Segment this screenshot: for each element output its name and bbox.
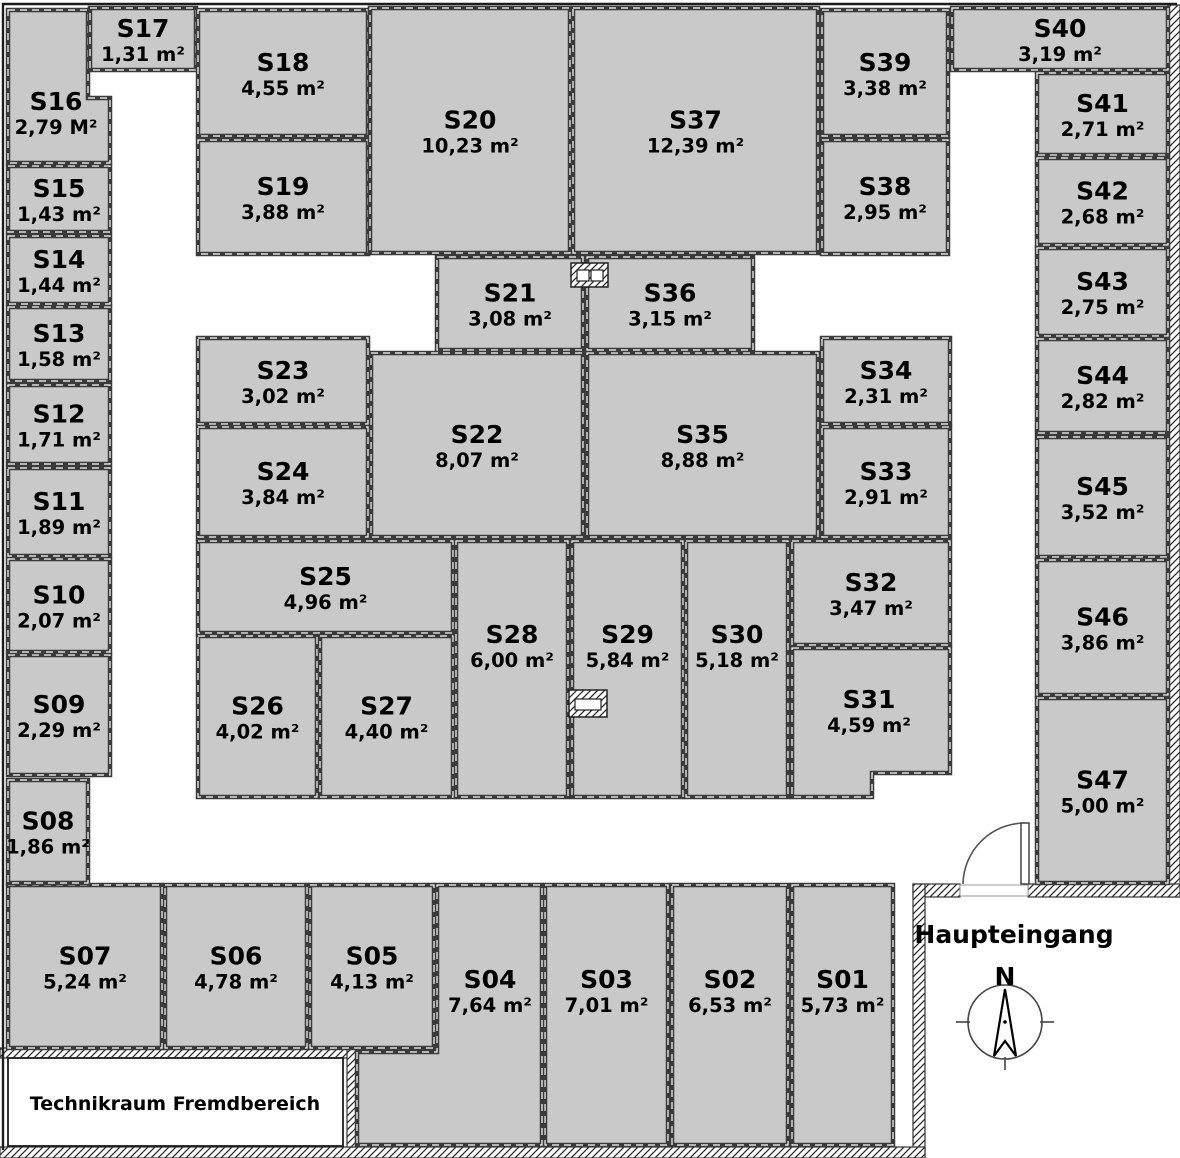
room-S20-area: 10,23 m² bbox=[421, 135, 518, 158]
room-S45: S453,52 m² bbox=[1037, 437, 1168, 557]
room-S05: S054,13 m² bbox=[310, 885, 434, 1048]
room-S30: S305,18 m² bbox=[686, 541, 788, 797]
room-S04-name: S04 bbox=[464, 965, 517, 994]
room-S06-area: 4,78 m² bbox=[194, 971, 278, 994]
room-S33-area: 2,91 m² bbox=[844, 486, 928, 509]
room-S32-area: 3,47 m² bbox=[829, 597, 913, 620]
room-S23: S233,02 m² bbox=[198, 338, 368, 424]
room-S43-name: S43 bbox=[1076, 267, 1129, 296]
room-S10-name: S10 bbox=[33, 581, 86, 610]
technikraum-label: Technikraum Fremdbereich bbox=[30, 1093, 320, 1115]
room-S12: S121,71 m² bbox=[8, 385, 110, 464]
room-S19-name: S19 bbox=[257, 172, 310, 201]
room-S35-name: S35 bbox=[676, 420, 729, 449]
room-S27-area: 4,40 m² bbox=[345, 721, 429, 744]
room-S25: S254,96 m² bbox=[198, 541, 453, 633]
room-S34: S342,31 m² bbox=[822, 338, 950, 424]
room-S39-name: S39 bbox=[859, 48, 912, 77]
room-S35-area: 8,88 m² bbox=[661, 449, 745, 472]
room-S32-name: S32 bbox=[845, 568, 898, 597]
room-S41-name: S41 bbox=[1076, 89, 1129, 118]
room-S28-area: 6,00 m² bbox=[470, 649, 554, 672]
room-S12-name: S12 bbox=[33, 400, 86, 429]
room-S31: S314,59 m² bbox=[792, 648, 950, 797]
room-S42-name: S42 bbox=[1076, 177, 1129, 206]
room-S11-name: S11 bbox=[33, 487, 86, 516]
room-S25-name: S25 bbox=[299, 562, 352, 591]
room-S09: S092,29 m² bbox=[8, 655, 110, 775]
room-S05-area: 4,13 m² bbox=[330, 971, 414, 994]
room-S28: S286,00 m² bbox=[456, 541, 568, 797]
room-S05-name: S05 bbox=[346, 942, 399, 971]
room-S38-name: S38 bbox=[859, 172, 912, 201]
room-S14: S141,44 m² bbox=[8, 236, 110, 304]
door-opening bbox=[960, 885, 1028, 896]
room-S41-area: 2,71 m² bbox=[1061, 118, 1145, 141]
room-S08-name: S08 bbox=[22, 807, 75, 836]
room-S44-name: S44 bbox=[1076, 361, 1129, 390]
room-S26: S264,02 m² bbox=[198, 636, 317, 797]
room-S45-name: S45 bbox=[1076, 472, 1129, 501]
room-S34-name: S34 bbox=[860, 356, 913, 385]
entrance-top-wall-right-segment bbox=[1028, 884, 1180, 897]
room-S18-area: 4,55 m² bbox=[241, 77, 325, 100]
room-S11-area: 1,89 m² bbox=[17, 516, 101, 539]
room-S40-name: S40 bbox=[1034, 14, 1087, 43]
room-S45-area: 3,52 m² bbox=[1061, 501, 1145, 524]
room-S15: S151,43 m² bbox=[8, 166, 110, 232]
room-S30-area: 5,18 m² bbox=[695, 649, 779, 672]
room-S23-area: 3,02 m² bbox=[241, 385, 325, 408]
room-S44-area: 2,82 m² bbox=[1061, 390, 1145, 413]
room-S33-name: S33 bbox=[860, 457, 913, 486]
room-S11: S111,89 m² bbox=[8, 468, 110, 556]
room-S41: S412,71 m² bbox=[1037, 73, 1168, 155]
room-S37-name: S37 bbox=[669, 106, 722, 135]
room-S38-area: 2,95 m² bbox=[843, 201, 927, 224]
compass-north-label: N bbox=[995, 962, 1016, 991]
room-S22-area: 8,07 m² bbox=[435, 449, 519, 472]
room-S02: S026,53 m² bbox=[672, 885, 788, 1145]
door-leaf bbox=[1021, 823, 1029, 884]
room-S37: S3712,39 m² bbox=[573, 8, 818, 253]
room-S15-name: S15 bbox=[33, 174, 86, 203]
room-S26-area: 4,02 m² bbox=[216, 721, 300, 744]
room-S04-area: 7,64 m² bbox=[448, 994, 532, 1017]
room-S08-area: 1,86 m² bbox=[6, 836, 90, 859]
room-S18: S184,55 m² bbox=[198, 10, 368, 136]
room-S21-area: 3,08 m² bbox=[468, 308, 552, 331]
room-S08: S081,86 m² bbox=[6, 780, 90, 883]
room-S03-name: S03 bbox=[580, 965, 633, 994]
room-S16-area: 2,79 M² bbox=[15, 116, 98, 139]
room-S28-name: S28 bbox=[486, 620, 539, 649]
room-S13: S131,58 m² bbox=[8, 307, 110, 381]
door-swing-arc bbox=[963, 823, 1025, 884]
room-S03-area: 7,01 m² bbox=[565, 994, 649, 1017]
room-S07-area: 5,24 m² bbox=[43, 971, 127, 994]
room-S17-name: S17 bbox=[117, 14, 170, 43]
room-S27-name: S27 bbox=[360, 692, 413, 721]
room-S31-name: S31 bbox=[843, 685, 896, 714]
room-S13-area: 1,58 m² bbox=[17, 348, 101, 371]
room-S22-name: S22 bbox=[451, 420, 504, 449]
room-S14-area: 1,44 m² bbox=[17, 274, 101, 297]
room-S15-area: 1,43 m² bbox=[17, 203, 101, 226]
room-S09-name: S09 bbox=[33, 690, 86, 719]
room-S13-name: S13 bbox=[33, 319, 86, 348]
main-entrance-label: Haupteingang bbox=[914, 920, 1113, 949]
room-S40-area: 3,19 m² bbox=[1018, 43, 1102, 66]
room-S46: S463,86 m² bbox=[1037, 560, 1168, 695]
room-S36-area: 3,15 m² bbox=[628, 308, 712, 331]
room-S33: S332,91 m² bbox=[822, 427, 950, 537]
compass: N bbox=[956, 962, 1054, 1070]
room-S17-area: 1,31 m² bbox=[101, 43, 185, 66]
room-S42: S422,68 m² bbox=[1037, 158, 1168, 245]
compass-center-dot bbox=[1003, 1020, 1007, 1024]
room-S30-name: S30 bbox=[711, 620, 764, 649]
room-S40: S403,19 m² bbox=[952, 8, 1168, 70]
room-S01-name: S01 bbox=[816, 965, 869, 994]
room-S36: S363,15 m² bbox=[587, 257, 753, 350]
room-S46-name: S46 bbox=[1076, 603, 1129, 632]
room-S37-area: 12,39 m² bbox=[647, 135, 744, 158]
room-S07-name: S07 bbox=[59, 942, 112, 971]
room-S29-area: 5,84 m² bbox=[586, 649, 670, 672]
room-S34-area: 2,31 m² bbox=[844, 385, 928, 408]
room-S19-area: 3,88 m² bbox=[241, 201, 325, 224]
technikraum-room: Technikraum Fremdbereich bbox=[8, 1058, 343, 1146]
room-S19: S193,88 m² bbox=[198, 140, 368, 254]
entrance-door bbox=[960, 823, 1029, 896]
room-S39-area: 3,38 m² bbox=[843, 77, 927, 100]
room-S07: S075,24 m² bbox=[8, 885, 162, 1048]
room-S10: S102,07 m² bbox=[8, 559, 110, 652]
room-S25-area: 4,96 m² bbox=[284, 591, 368, 614]
room-S38: S382,95 m² bbox=[822, 140, 948, 254]
room-S24-name: S24 bbox=[257, 457, 310, 486]
floorplan-page: S015,73 m²S026,53 m²S037,01 m²S047,64 m²… bbox=[0, 0, 1180, 1158]
room-S14-name: S14 bbox=[33, 245, 86, 274]
room-S24: S243,84 m² bbox=[198, 427, 368, 537]
room-S18-name: S18 bbox=[257, 48, 310, 77]
pillar-2 bbox=[569, 690, 607, 717]
room-S24-area: 3,84 m² bbox=[241, 486, 325, 509]
room-S43: S432,75 m² bbox=[1037, 248, 1168, 336]
room-S47: S475,00 m² bbox=[1037, 698, 1168, 883]
room-S02-area: 6,53 m² bbox=[688, 994, 772, 1017]
room-S47-area: 5,00 m² bbox=[1061, 795, 1145, 818]
room-S09-area: 2,29 m² bbox=[17, 719, 101, 742]
room-S21-name: S21 bbox=[484, 279, 537, 308]
room-S17: S171,31 m² bbox=[90, 8, 196, 70]
room-S26-name: S26 bbox=[231, 692, 284, 721]
room-S46-area: 3,86 m² bbox=[1061, 632, 1145, 655]
room-S20-name: S20 bbox=[444, 106, 497, 135]
room-S23-name: S23 bbox=[257, 356, 310, 385]
room-S01: S015,73 m² bbox=[792, 885, 893, 1145]
room-S06: S064,78 m² bbox=[165, 885, 307, 1048]
room-S31-area: 4,59 m² bbox=[827, 714, 911, 737]
room-S47-name: S47 bbox=[1076, 766, 1129, 795]
room-S42-area: 2,68 m² bbox=[1061, 206, 1145, 229]
pillar-1 bbox=[571, 263, 608, 287]
room-S22: S228,07 m² bbox=[371, 353, 583, 537]
floorplan-svg: S015,73 m²S026,53 m²S037,01 m²S047,64 m²… bbox=[0, 0, 1180, 1158]
room-S29-name: S29 bbox=[601, 620, 654, 649]
room-S32: S323,47 m² bbox=[792, 541, 950, 645]
room-S21: S213,08 m² bbox=[437, 257, 583, 350]
room-S44: S442,82 m² bbox=[1037, 339, 1168, 433]
bottom-exterior-wall-hatch bbox=[0, 1147, 925, 1158]
room-S29: S295,84 m² bbox=[572, 541, 683, 797]
room-S36-name: S36 bbox=[644, 279, 697, 308]
room-S39: S393,38 m² bbox=[822, 10, 948, 136]
room-S20: S2010,23 m² bbox=[370, 8, 570, 253]
room-S03: S037,01 m² bbox=[545, 885, 668, 1145]
room-S27: S274,40 m² bbox=[320, 636, 453, 797]
room-S01-area: 5,73 m² bbox=[801, 994, 885, 1017]
room-S10-area: 2,07 m² bbox=[17, 610, 101, 633]
room-S02-name: S02 bbox=[704, 965, 757, 994]
room-S12-area: 1,71 m² bbox=[17, 429, 101, 452]
room-S06-name: S06 bbox=[210, 942, 263, 971]
room-S35: S358,88 m² bbox=[587, 353, 818, 537]
room-S43-area: 2,75 m² bbox=[1061, 296, 1145, 319]
room-S16-name: S16 bbox=[30, 87, 83, 116]
